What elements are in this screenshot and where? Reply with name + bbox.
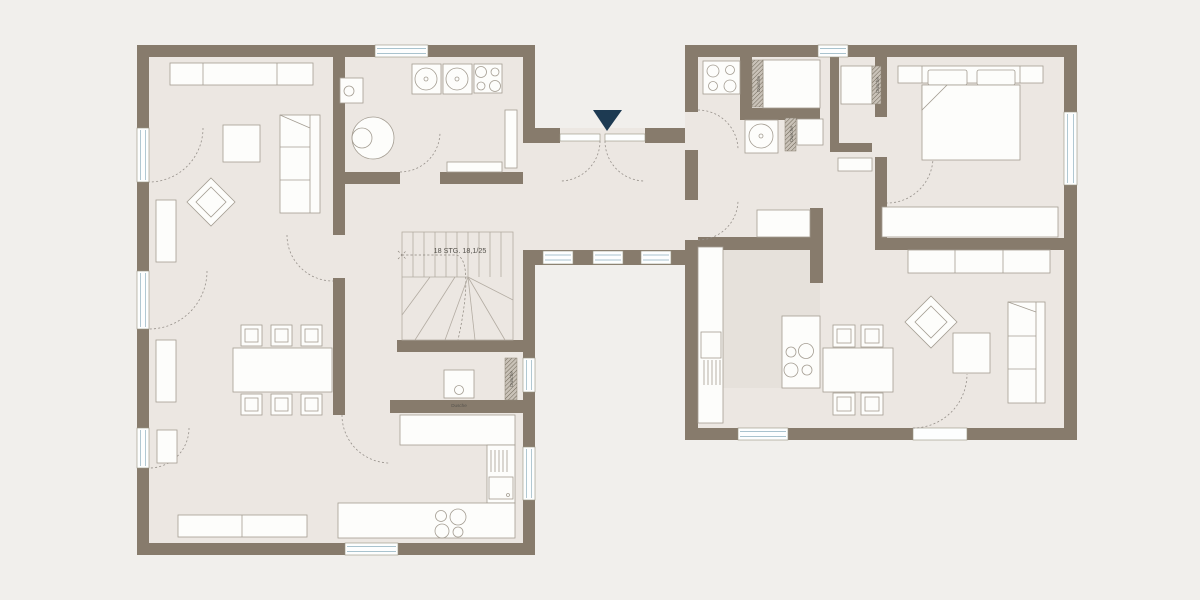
sofa: [1008, 302, 1045, 403]
wall: [830, 143, 872, 152]
wall: [685, 45, 1077, 57]
terrace-door: [913, 428, 967, 440]
wall-opening: [685, 200, 698, 240]
shower-label: Dusche: [789, 126, 794, 142]
chair: [301, 394, 322, 415]
shower-tray: [841, 66, 872, 104]
window: [523, 358, 535, 392]
left-building: 18 STG. 18,1/25 Dusche Dusche: [137, 45, 535, 555]
shower-label: Dusche: [875, 77, 880, 93]
wall: [397, 340, 523, 352]
corridor: [535, 110, 690, 265]
chair: [833, 393, 855, 415]
wall: [137, 45, 535, 57]
bench: [838, 158, 872, 171]
pillow: [977, 70, 1015, 85]
washing-machine: [412, 64, 441, 94]
shower-label: Dusche: [451, 403, 467, 408]
floor-plan: 18 STG. 18,1/25 Dusche Dusche: [0, 0, 1200, 600]
bench: [447, 162, 502, 172]
kitchen-counter: [338, 503, 515, 538]
wall: [645, 128, 690, 143]
sideboard: [178, 515, 307, 537]
sideboard: [757, 210, 810, 237]
entrance-marker-icon: [593, 110, 622, 131]
wall: [830, 57, 839, 152]
dining-table: [823, 348, 893, 392]
cabinet: [505, 110, 517, 168]
chair: [241, 394, 262, 415]
window: [345, 543, 398, 555]
kitchen-counter: [698, 247, 723, 423]
stairs-label: 18 STG. 18,1/25: [434, 246, 487, 255]
wall: [685, 45, 698, 440]
pillow: [928, 70, 967, 85]
shower-label: Dusche: [756, 76, 761, 92]
chair: [271, 394, 292, 415]
shower-label: Dusche: [509, 371, 514, 387]
hallway: [757, 210, 810, 237]
kitchen-counter: [782, 316, 820, 388]
sofa: [280, 115, 320, 213]
coffee-table: [953, 333, 990, 373]
wall-opening: [523, 143, 535, 250]
kitchen-counter: [400, 415, 515, 445]
wall: [740, 57, 752, 108]
sideboard: [170, 63, 313, 85]
right-building: Dusche Dusche Dusche: [685, 45, 1077, 440]
wall: [345, 172, 400, 184]
wall: [137, 543, 535, 555]
side-table: [223, 125, 260, 162]
door-leaf: [560, 134, 600, 141]
wall: [1064, 45, 1077, 440]
chair: [833, 325, 855, 347]
window: [1064, 112, 1077, 185]
sink: [340, 78, 363, 103]
sideboard: [908, 250, 1050, 273]
window: [818, 45, 848, 57]
radiator: [157, 430, 177, 463]
door-leaf: [605, 134, 645, 141]
wall: [440, 172, 523, 184]
wall: [535, 128, 560, 143]
washing-machine: [745, 120, 778, 153]
wall: [740, 108, 820, 120]
round-table: [352, 117, 394, 159]
window: [375, 45, 428, 57]
chair: [301, 325, 322, 346]
wall-opening: [685, 112, 698, 150]
radiator: [156, 340, 176, 402]
cooktop: [703, 61, 740, 94]
window: [137, 271, 149, 329]
chair: [861, 393, 883, 415]
chair: [271, 325, 292, 346]
dryer: [443, 64, 472, 94]
window: [137, 428, 149, 468]
headboard: [898, 66, 1043, 83]
window: [738, 428, 788, 440]
side-table: [797, 119, 823, 145]
wardrobe: [882, 207, 1058, 237]
window: [641, 251, 671, 264]
wall: [875, 238, 1064, 250]
radiator: [156, 200, 176, 262]
chair: [241, 325, 262, 346]
chair: [861, 325, 883, 347]
wall: [333, 278, 345, 415]
window: [593, 251, 623, 264]
window: [523, 447, 535, 500]
sink: [444, 370, 474, 398]
window: [543, 251, 573, 264]
window: [137, 128, 149, 182]
double-bed: [922, 85, 1020, 160]
corridor-floor: [535, 128, 690, 265]
wall: [810, 208, 823, 283]
shower-tray: [763, 60, 820, 108]
dining-table: [233, 348, 332, 392]
cooktop: [474, 64, 502, 93]
kitchen-counter: [487, 445, 515, 503]
